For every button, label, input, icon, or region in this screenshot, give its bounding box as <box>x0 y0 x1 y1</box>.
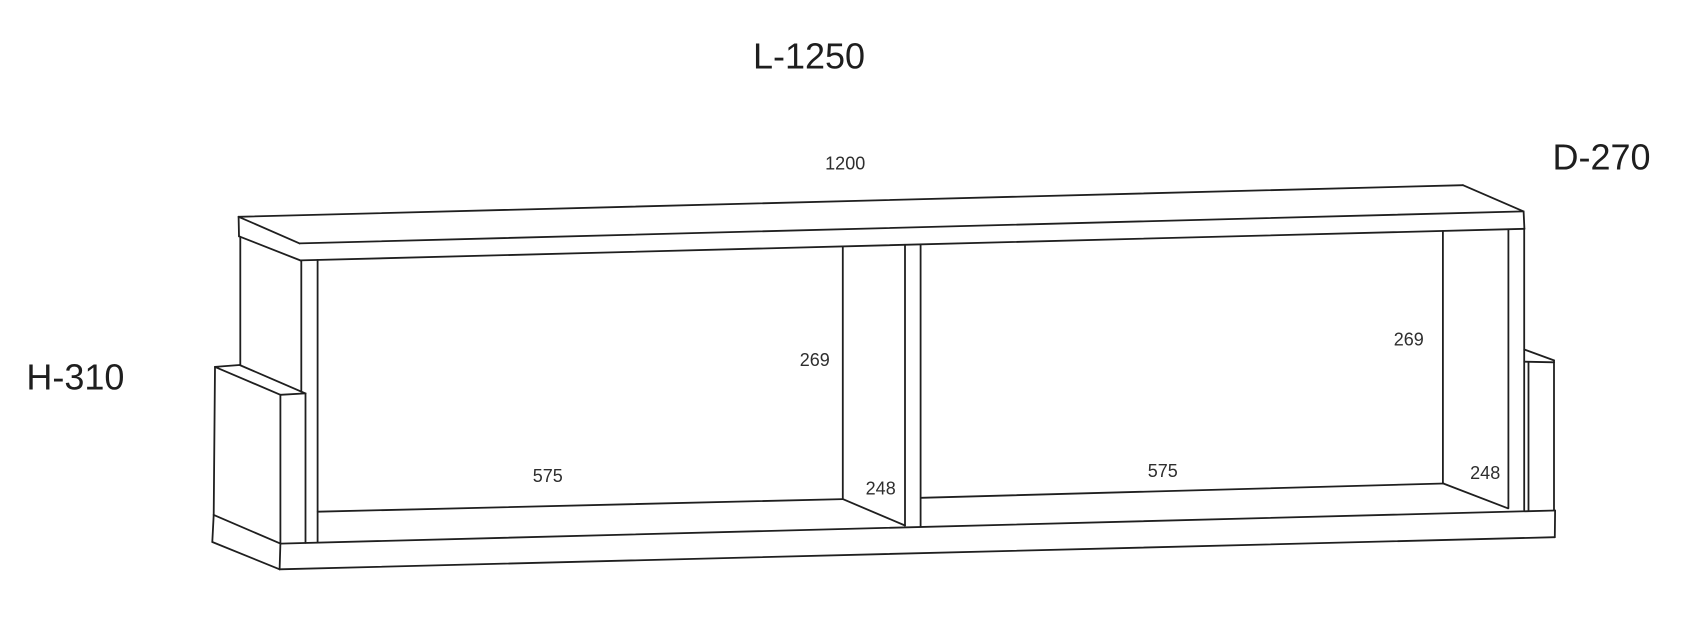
svg-text:575: 575 <box>533 466 563 486</box>
svg-text:L-1250: L-1250 <box>753 36 865 77</box>
svg-text:H-310: H-310 <box>26 356 124 397</box>
svg-text:D-270: D-270 <box>1552 136 1650 177</box>
svg-text:1200: 1200 <box>825 153 865 173</box>
svg-text:269: 269 <box>800 350 830 370</box>
svg-text:269: 269 <box>1394 330 1424 350</box>
svg-text:575: 575 <box>1148 461 1178 481</box>
svg-text:248: 248 <box>1470 463 1500 483</box>
svg-text:248: 248 <box>866 479 896 499</box>
